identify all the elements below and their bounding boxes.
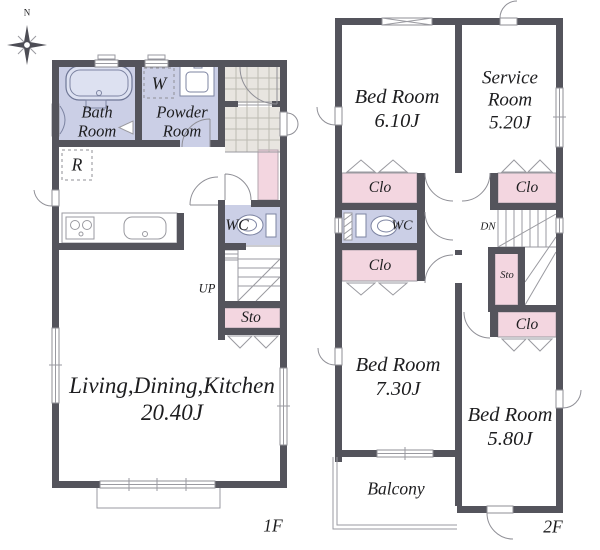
stairs-down-label: DN [480, 221, 495, 234]
ldk-name: Living,Dining,Kitchen [69, 372, 275, 399]
bedroom3-size: 5.80J [468, 427, 553, 451]
deck-outline [97, 488, 220, 508]
washer-label: W [152, 74, 167, 95]
service-room-line2: Room [482, 90, 538, 112]
bedroom1-size: 6.10J [355, 109, 440, 133]
compass-icon [7, 25, 47, 65]
closet-label-bottom-right: Clo [516, 316, 538, 334]
bath-room-label: Bath Room [78, 103, 117, 142]
closet-label-top-right: Clo [516, 179, 538, 197]
storage-label-1f: Sto [241, 309, 261, 327]
bedroom2-size: 7.30J [356, 377, 441, 401]
shoe-closet-area [258, 150, 278, 200]
service-room-size: 5.20J [482, 112, 538, 134]
compass-north-label: N [24, 8, 31, 19]
bath-room-label-line1: Bath [78, 103, 117, 122]
powder-room-label-line2: Room [156, 122, 207, 141]
room-fills [52, 60, 556, 337]
balcony-label: Balcony [367, 479, 424, 500]
wc-label-1f: WC [225, 217, 248, 235]
kitchen-counter-icon [62, 213, 177, 243]
closet-label-mid-left: Clo [369, 257, 391, 275]
stairs-1f [222, 246, 280, 301]
bedroom3-label: Bed Room 5.80J [468, 403, 553, 451]
powder-sink-icon [180, 63, 214, 96]
bedroom2-name: Bed Room [356, 353, 441, 377]
floor1-label: 1F [263, 516, 282, 537]
service-room-line1: Service [482, 67, 538, 89]
bath-room-label-line2: Room [78, 122, 117, 141]
storage-label-2f: Sto [500, 270, 513, 282]
floorplan-canvas: Bath Room Powder Room W R WC UP Sto Livi… [0, 0, 600, 550]
powder-room-label: Powder Room [156, 103, 207, 142]
ldk-label: Living,Dining,Kitchen 20.40J [69, 372, 275, 426]
powder-room-label-line1: Powder [156, 103, 207, 122]
bedroom2-label: Bed Room 7.30J [356, 353, 441, 401]
bedroom1-name: Bed Room [355, 85, 440, 109]
entrance-porch-tiles [225, 67, 280, 103]
service-room-label: Service Room 5.20J [482, 67, 538, 134]
fridge-label: R [72, 155, 83, 176]
wc-label-2f: WC [392, 219, 413, 236]
stairs-up-label: UP [199, 282, 216, 297]
ldk-size: 20.40J [69, 399, 275, 426]
floor2-label: 2F [543, 517, 562, 538]
bedroom3-name: Bed Room [468, 403, 553, 427]
bedroom1-label: Bed Room 6.10J [355, 85, 440, 133]
closet-label-top-left: Clo [369, 179, 391, 197]
